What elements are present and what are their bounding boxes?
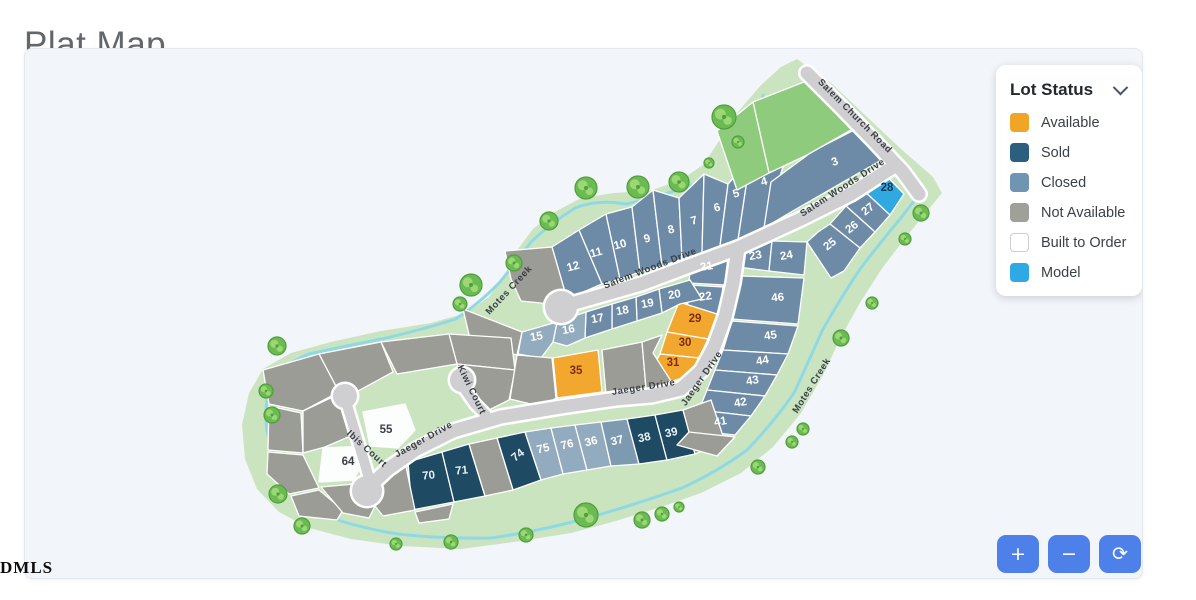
tree-icon [540, 212, 558, 230]
lot-number-45: 45 [763, 329, 778, 343]
tree-icon [674, 502, 684, 512]
tree-icon [269, 485, 287, 503]
lot-number-19: 19 [640, 297, 655, 311]
legend-label: Model [1041, 265, 1081, 281]
tree-icon [627, 176, 649, 198]
lot-number-42: 42 [733, 396, 748, 410]
lot-number-28: 28 [881, 182, 894, 194]
lot-46[interactable] [732, 276, 804, 324]
reset-view-button[interactable]: ⟳ [1099, 535, 1141, 573]
tree-icon [913, 205, 929, 221]
tree-icon [655, 507, 669, 521]
tree-icon [264, 407, 280, 423]
legend-label: Built to Order [1041, 235, 1126, 251]
tree-icon [669, 172, 689, 192]
legend-item-closed: Closed [1010, 173, 1130, 192]
legend-item-model: Model [1010, 263, 1130, 282]
dmls-watermark: DMLS [0, 558, 53, 578]
lot-number-21: 21 [699, 260, 714, 274]
plat-map-svg: Salem Church RoadSalem Woods DriveSalem … [25, 49, 1142, 578]
tree-icon [268, 337, 286, 355]
lot-number-71: 71 [455, 464, 470, 477]
legend-label: Sold [1041, 145, 1070, 161]
tree-icon [751, 460, 765, 474]
tree-icon [866, 297, 878, 309]
tree-icon [704, 158, 714, 168]
lot-number-22: 22 [698, 290, 712, 304]
minus-icon: − [1061, 545, 1077, 564]
lot-number-35: 35 [570, 365, 583, 377]
lot-45[interactable] [723, 321, 798, 354]
tree-icon [833, 330, 849, 346]
legend-label: Available [1041, 115, 1100, 131]
legend-swatch [1010, 113, 1029, 132]
chevron-down-icon[interactable] [1113, 79, 1129, 95]
tree-icon [390, 538, 402, 550]
plat-map-canvas[interactable]: Salem Church RoadSalem Woods DriveSalem … [24, 48, 1143, 579]
lot-number-43: 43 [745, 374, 760, 388]
legend-item-not-available: Not Available [1010, 203, 1130, 222]
parcel-na[interactable] [510, 355, 556, 407]
tree-icon [506, 255, 522, 271]
legend-item-sold: Sold [1010, 143, 1130, 162]
legend-swatch [1010, 263, 1029, 282]
tree-icon [453, 297, 467, 311]
lot-number-23: 23 [748, 249, 763, 263]
lot-number-31: 31 [667, 357, 680, 369]
zoom-in-button[interactable]: + [997, 535, 1039, 573]
legend-label: Not Available [1041, 205, 1125, 221]
tree-icon [294, 518, 310, 534]
tree-icon [575, 177, 597, 199]
tree-icon [797, 423, 809, 435]
lot-number-20: 20 [667, 288, 682, 302]
legend-swatch [1010, 203, 1029, 222]
legend-swatch [1010, 143, 1029, 162]
lot-number-46: 46 [771, 291, 785, 304]
lot-number-30: 30 [679, 337, 692, 349]
tree-icon [634, 512, 650, 528]
tree-icon [712, 105, 736, 129]
lot-number-17: 17 [590, 312, 605, 326]
legend-item-built-to-order: Built to Order [1010, 233, 1130, 252]
tree-icon [786, 436, 798, 448]
tree-icon [519, 528, 533, 542]
zoom-out-button[interactable]: − [1048, 535, 1090, 573]
refresh-icon: ⟳ [1112, 545, 1128, 564]
lot-number-70: 70 [422, 469, 436, 482]
legend-swatch [1010, 233, 1029, 252]
plus-icon: + [1010, 545, 1026, 564]
tree-icon [899, 233, 911, 245]
legend-label: Closed [1041, 175, 1086, 191]
tree-icon [259, 384, 273, 398]
tree-icon [444, 535, 458, 549]
legend-title: Lot Status [1010, 80, 1093, 100]
lot-number-64: 64 [342, 456, 355, 468]
tree-icon [732, 136, 744, 148]
lot-number-29: 29 [689, 313, 702, 325]
lot-status-legend: Lot Status AvailableSoldClosedNot Availa… [996, 65, 1142, 296]
legend-item-available: Available [1010, 113, 1130, 132]
legend-items: AvailableSoldClosedNot AvailableBuilt to… [1010, 113, 1130, 282]
lot-number-55: 55 [380, 424, 393, 436]
tree-icon [460, 274, 482, 296]
lot-number-16: 16 [561, 323, 576, 337]
legend-swatch [1010, 173, 1029, 192]
map-zoom-controls: +−⟳ [997, 535, 1141, 573]
tree-icon [574, 503, 598, 527]
